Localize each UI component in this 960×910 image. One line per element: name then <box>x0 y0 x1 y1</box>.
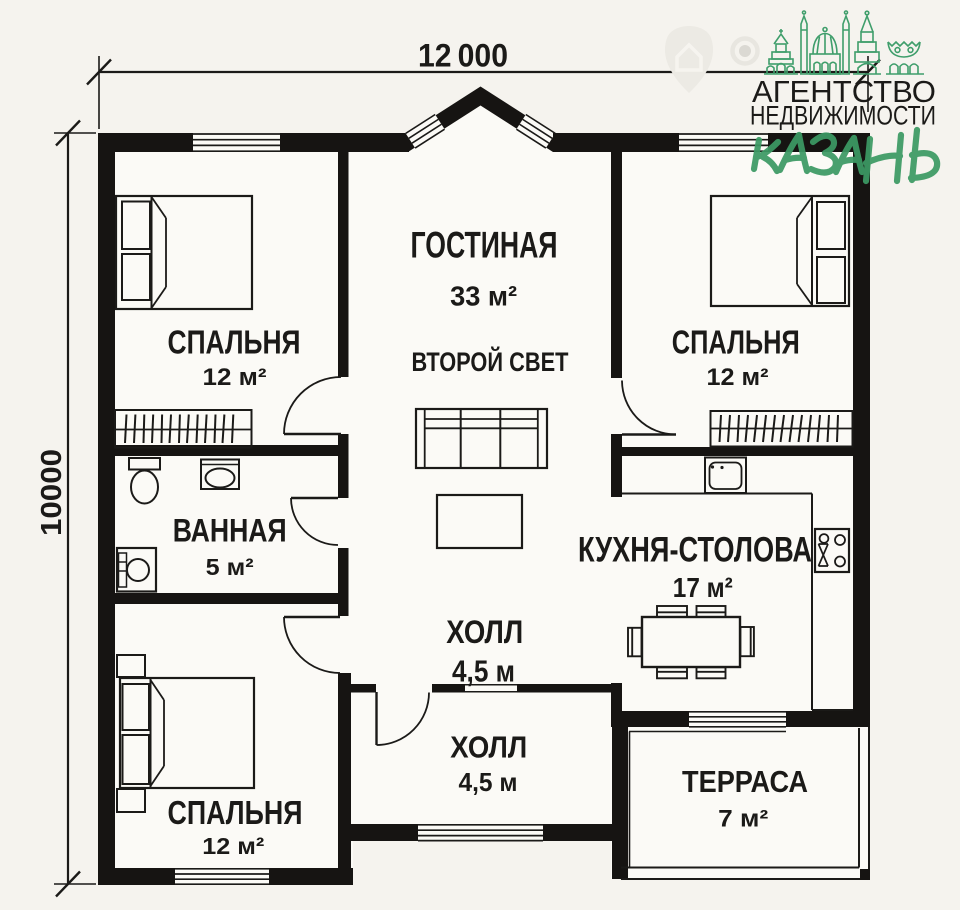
svg-text:4,5 м: 4,5 м <box>452 654 515 689</box>
svg-text:ВАННАЯ: ВАННАЯ <box>173 513 287 549</box>
svg-text:ВТОРОЙ СВЕТ: ВТОРОЙ СВЕТ <box>412 346 569 377</box>
svg-text:ХОЛЛ: ХОЛЛ <box>446 614 523 650</box>
svg-text:12 м²: 12 м² <box>203 364 267 391</box>
svg-text:7 м²: 7 м² <box>718 806 768 833</box>
svg-text:ГОСТИНАЯ: ГОСТИНАЯ <box>411 225 558 266</box>
svg-text:12 м²: 12 м² <box>202 833 264 859</box>
svg-text:12 м²: 12 м² <box>707 364 769 391</box>
svg-text:5 м²: 5 м² <box>206 554 254 580</box>
svg-text:4,5 м: 4,5 м <box>459 767 518 797</box>
svg-text:ХОЛЛ: ХОЛЛ <box>450 730 527 765</box>
svg-text:КУХНЯ-СТОЛОВА: КУХНЯ-СТОЛОВА <box>578 530 812 570</box>
svg-text:ТЕРРАСА: ТЕРРАСА <box>682 765 808 799</box>
svg-text:СПАЛЬНЯ: СПАЛЬНЯ <box>168 323 301 360</box>
svg-text:12 000: 12 000 <box>418 38 508 74</box>
svg-text:33 м²: 33 м² <box>450 281 517 312</box>
svg-text:10000: 10000 <box>36 449 68 536</box>
svg-text:НЕДВИЖИМОСТИ: НЕДВИЖИМОСТИ <box>750 101 936 131</box>
svg-text:СПАЛЬНЯ: СПАЛЬНЯ <box>168 794 303 831</box>
svg-text:СПАЛЬНЯ: СПАЛЬНЯ <box>672 323 800 360</box>
svg-text:17 м²: 17 м² <box>673 572 733 603</box>
